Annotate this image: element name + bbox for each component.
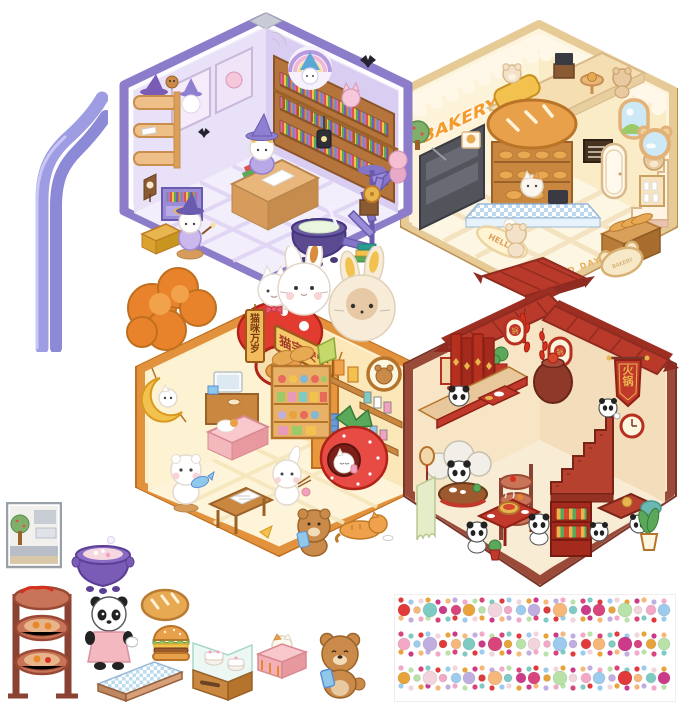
rhinestone-sticker-sheet xyxy=(394,594,676,702)
fortune-teller-cat xyxy=(389,151,407,183)
gem-strip xyxy=(398,665,670,690)
cash-register xyxy=(548,190,568,204)
rainbow-arch-window xyxy=(288,46,332,90)
svg-text:猫咪万岁: 猫咪万岁 xyxy=(249,312,261,355)
panda-diner xyxy=(467,522,488,554)
cat-tissue-box-sticker xyxy=(254,634,310,680)
library-room-sticker xyxy=(114,12,416,284)
tv xyxy=(555,53,573,65)
tweezers xyxy=(12,40,108,352)
goods-shelf xyxy=(271,338,336,438)
bread-sticker xyxy=(140,586,190,624)
svg-text:锅: 锅 xyxy=(557,347,564,356)
hotpot-room-sticker: 锅 锅 火锅 xyxy=(401,250,679,588)
vertical-sign: 猫咪万岁 xyxy=(246,304,264,362)
arched-door xyxy=(602,144,626,198)
bunny-head-small xyxy=(278,246,330,315)
brown-bear-with-phone xyxy=(297,509,330,556)
cake-display-sticker xyxy=(188,630,256,703)
bear-face-window xyxy=(639,127,671,158)
svg-text:火锅: 火锅 xyxy=(623,364,635,388)
red-bookshelf xyxy=(551,502,591,556)
tv-stand xyxy=(554,64,574,78)
bear-at-table xyxy=(613,68,631,98)
bone-toy-icon xyxy=(383,536,393,541)
kitchen-picture-sticker xyxy=(6,502,62,572)
cat-store-room-sticker: 猫咪万岁 猫宅安宁 xyxy=(122,246,426,560)
arch-window: 锅 xyxy=(505,318,525,344)
gem-strip xyxy=(398,631,670,656)
bear-on-sofa xyxy=(503,64,521,83)
checkered-counter xyxy=(466,204,600,218)
giant-bread xyxy=(488,100,576,148)
wall-mirror xyxy=(368,358,400,390)
panda-diner xyxy=(590,522,608,541)
bonsai-icon xyxy=(473,484,481,492)
steamer-tower-sticker xyxy=(4,584,80,702)
jar-shelf-frame xyxy=(640,176,664,206)
curtain xyxy=(417,477,435,540)
panda-host xyxy=(447,460,471,483)
counter-sticker xyxy=(94,656,186,702)
gem-strip xyxy=(398,597,670,622)
cup-icon xyxy=(126,637,138,647)
owl-icon xyxy=(166,76,178,88)
wall-clock xyxy=(621,415,643,437)
sticker-set-product-photo: BAKERY xyxy=(0,0,679,703)
svg-text:锅: 锅 xyxy=(512,326,519,335)
bunny-head-large xyxy=(329,246,395,341)
bear-phone-sticker xyxy=(314,632,368,700)
panda-diner xyxy=(529,514,550,546)
panda-diner xyxy=(449,386,470,407)
